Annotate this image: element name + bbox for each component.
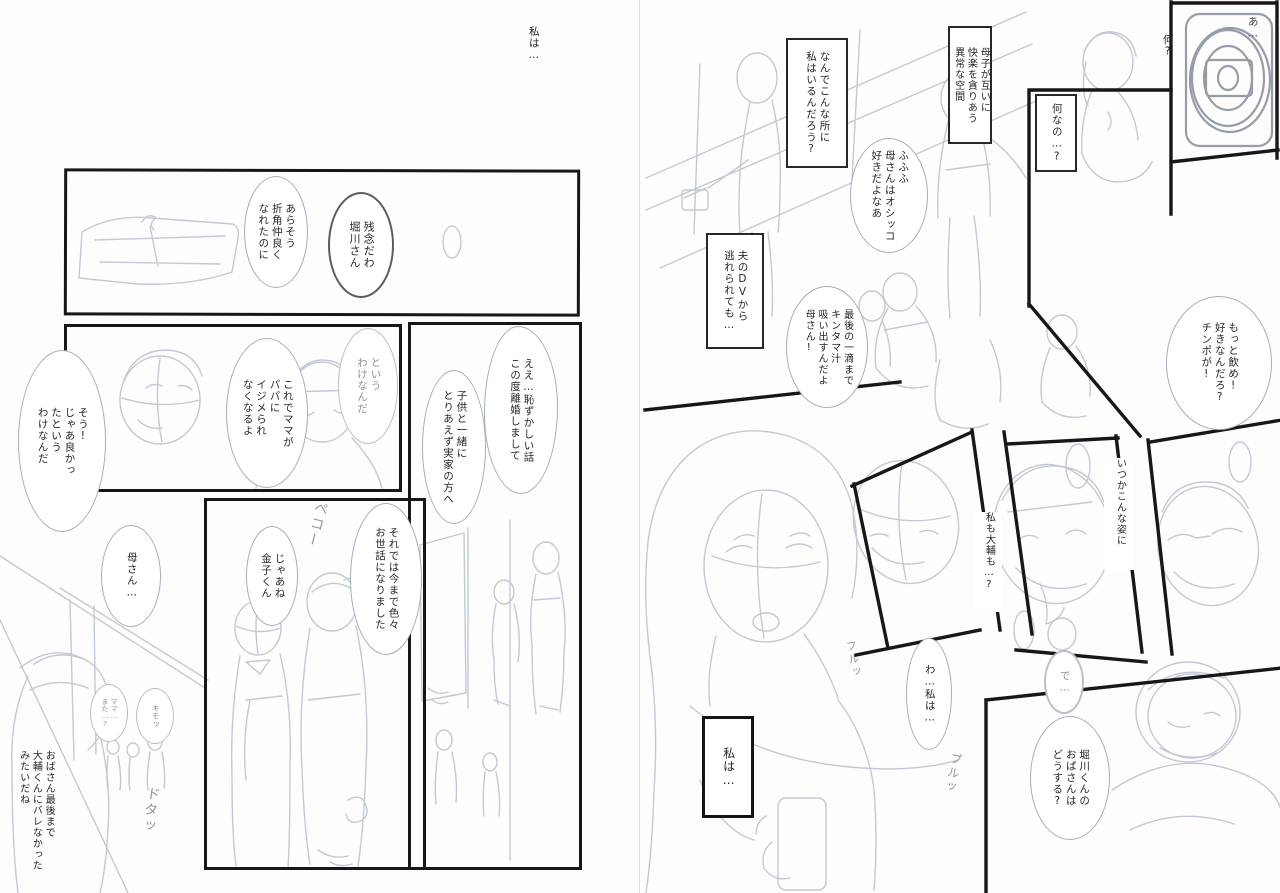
speech-bubble: ふふふ 母さんはオシッコ 好きだよなあ: [850, 138, 928, 253]
bubble-text: ええ…恥ずかしい話 この度離婚しまして: [508, 358, 535, 463]
speech-bubble: ママ… また…?: [90, 684, 128, 742]
caption-text: 夫のDVから 逃れられても…: [722, 250, 749, 332]
bubble-text: という わけなんだ: [355, 357, 382, 415]
bubble-text: もっと飲め! 好きなんだろ? チンポが!: [1199, 322, 1239, 404]
narration-text: 私は…: [526, 26, 539, 62]
speech-bubble: 子供と一緒に とりあえず実家の方へ: [422, 370, 486, 524]
caption-text: なんでこんな所に 私はいるんだろう?: [804, 51, 831, 156]
caption-text: おばさん最後まで 大輔くんにバレなかった みたいだね: [16, 750, 54, 871]
bubble-text: キモッ: [150, 704, 160, 728]
speech-bubble: 母さん…: [101, 525, 161, 627]
caption-box: 私は…: [702, 716, 754, 818]
floating-text: いつかこんな姿に: [1113, 458, 1126, 546]
bubble-text: そう! じゃあ良かっ たという わけなんだ: [35, 407, 89, 476]
bubble-text: 堀川くんの おばさんは どうする?: [1050, 749, 1090, 808]
speech-bubble: 最後の一滴まで キンタマ汁 吸い出すんだよ 母さん!: [786, 286, 868, 408]
floating-text: 何?: [1160, 34, 1173, 59]
floating-itsuka: いつかこんな姿に: [1104, 458, 1134, 570]
floating-a: あ…: [1244, 16, 1260, 60]
bubble-text: ママ… また…?: [100, 698, 118, 728]
caption-text: 何なの…?: [1049, 103, 1062, 164]
speech-bubble: 堀川くんの おばさんは どうする?: [1030, 716, 1110, 840]
caption-box: なんでこんな所に 私はいるんだろう?: [786, 38, 848, 168]
bubble-text: 母さん…: [124, 552, 137, 600]
caption-box: 何なの…?: [1035, 94, 1077, 172]
manga-spread: 私は… あらそう 折角仲良く なれたのに 残念だわ 堀川さん という わけなんだ…: [0, 0, 1280, 893]
speech-bubble: で…: [1044, 650, 1084, 714]
speech-bubble: あらそう 折角仲良く なれたのに: [244, 176, 308, 288]
caption-text: 母子が互いに 快楽を貪りあう 異常な空間: [951, 47, 989, 124]
panel-classroom: [64, 168, 580, 316]
caption-obasan: おばさん最後まで 大輔くんにバレなかった みたいだね: [4, 750, 66, 890]
floating-nani: 何?: [1158, 34, 1176, 78]
narration-watashi-wa: 私は…: [516, 26, 550, 106]
floating-text: 私も大輔も…?: [982, 512, 995, 591]
caption-box: 夫のDVから 逃れられても…: [706, 233, 764, 349]
page-gutter: [639, 0, 640, 893]
bubble-text: あらそう 折角仲良く なれたのに: [256, 203, 296, 261]
speech-bubble: そう! じゃあ良かっ たという わけなんだ: [18, 350, 106, 532]
speech-bubble: もっと飲め! 好きなんだろ? チンポが!: [1166, 296, 1272, 430]
bubble-text: わ…私は…: [922, 664, 935, 725]
bubble-text: これでママが パパに イジメられ なくなるよ: [240, 379, 294, 448]
bubble-text: 子供と一緒に とりあえず実家の方へ: [441, 390, 468, 505]
speech-bubble: これでママが パパに イジメられ なくなるよ: [226, 338, 308, 488]
floating-watashimo: 私も大輔も…?: [974, 512, 1002, 612]
bubble-text: で…: [1057, 670, 1070, 695]
bubble-text: じゃあね 金子くん: [259, 553, 286, 599]
speech-bubble: ええ…恥ずかしい話 この度離婚しまして: [484, 326, 558, 494]
bubble-text: 最後の一滴まで キンタマ汁 吸い出すんだよ 母さん!: [801, 309, 852, 386]
speech-bubble: じゃあね 金子くん: [246, 526, 298, 626]
caption-text: 私は…: [720, 747, 735, 788]
speech-bubble: 残念だわ 堀川さん: [328, 192, 394, 298]
floating-text: あ…: [1245, 16, 1258, 41]
speech-bubble: わ…私は…: [906, 638, 952, 750]
speech-bubble: という わけなんだ: [338, 328, 398, 444]
bubble-text: それでは今まで色々 お世話になりました: [373, 527, 400, 631]
speech-bubble: それでは今まで色々 お世話になりました: [350, 503, 422, 655]
bubble-text: ふふふ 母さんはオシッコ 好きだよなあ: [869, 150, 909, 242]
speech-bubble: キモッ: [136, 688, 174, 744]
bubble-text: 残念だわ 堀川さん: [347, 221, 375, 269]
caption-box: 母子が互いに 快楽を貪りあう 異常な空間: [948, 26, 992, 144]
